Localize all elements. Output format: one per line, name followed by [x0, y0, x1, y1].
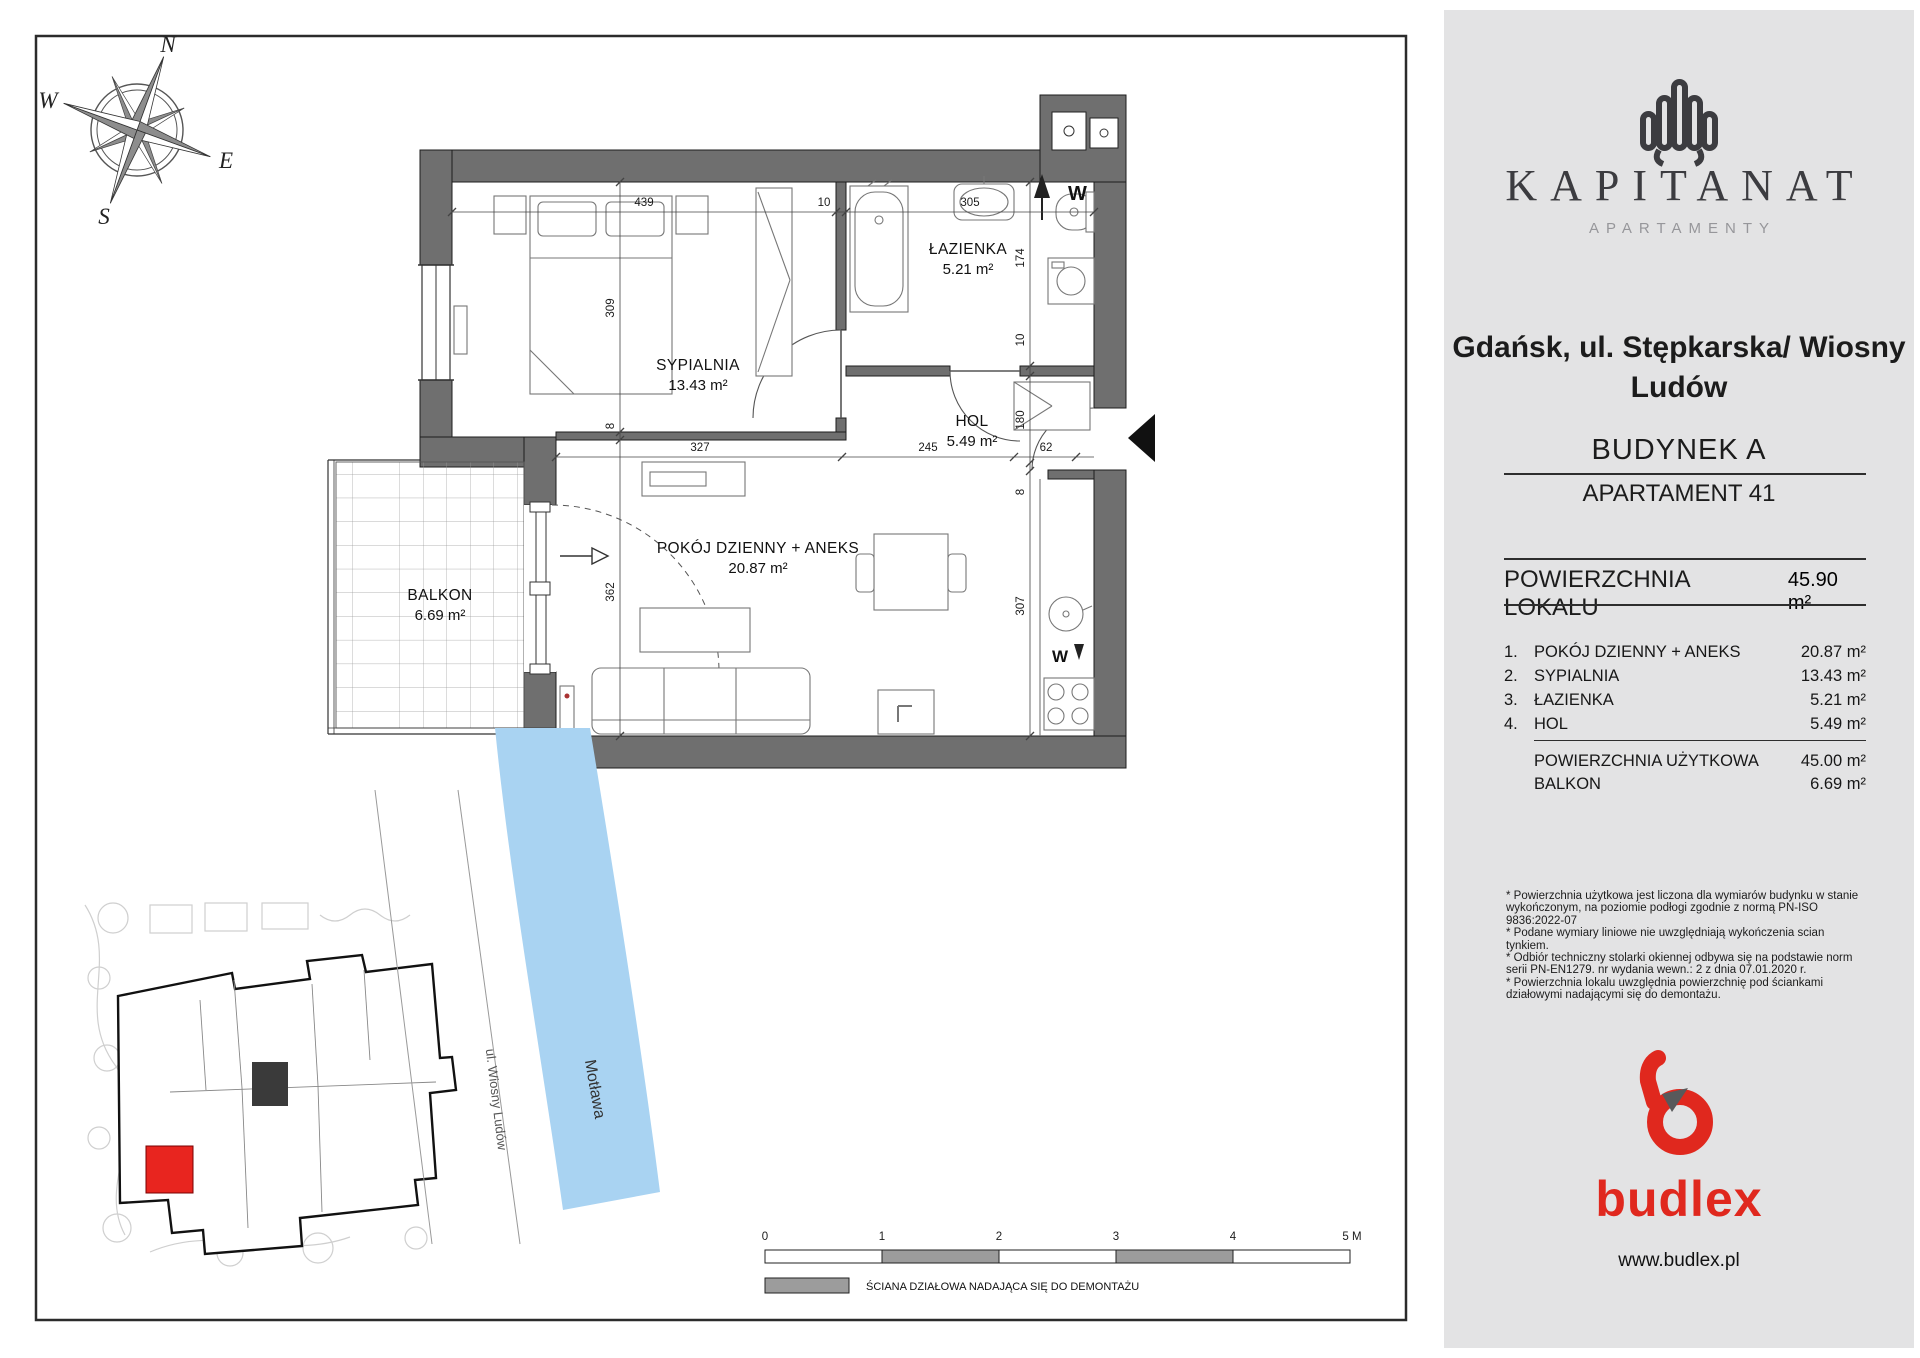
dim-door-width: 62 [1040, 442, 1053, 454]
row-room-area: 5.21 m² [1810, 688, 1866, 712]
info-sidebar: KAPITANAT APARTAMENTY Gdańsk, ul. Stępka… [1444, 10, 1914, 1348]
footnote: * Powierzchnia użytkowa jest liczona dla… [1506, 890, 1870, 927]
apartment-title: APARTAMENT 41 [1444, 480, 1914, 508]
legend-label: ŚCIANA DZIAŁOWA NADAJĄCA SIĘ DO DEMONTAŻ… [866, 1280, 1139, 1293]
compass-south-label: S [98, 204, 110, 229]
row-room-name: SYPIALNIA [1534, 664, 1801, 688]
sofa [592, 668, 810, 734]
room-label-lazienka: ŁAZIENKA [929, 241, 1007, 258]
row-room-area: 20.87 m² [1801, 640, 1866, 664]
dim-wall-8: 8 [1015, 489, 1027, 495]
balcony-area-row: BALKON 6.69 m² [1534, 773, 1866, 796]
dim-hol-width: 245 [918, 442, 937, 454]
washer-marker-label: W [1052, 647, 1069, 666]
compass-north-label: N [159, 32, 177, 57]
dim-living-depth2: 362 [605, 582, 617, 601]
scale-tick-3: 3 [1113, 1231, 1119, 1243]
room-area-sypialnia: 13.43 m² [668, 377, 727, 394]
website-url: www.budlex.pl [1444, 1250, 1914, 1272]
row-room-name: ŁAZIENKA [1534, 688, 1810, 712]
footnotes: * Powierzchnia użytkowa jest liczona dla… [1506, 890, 1870, 1002]
dim-wall-10: 10 [818, 197, 831, 209]
table-row: 1. POKÓJ DZIENNY + ANEKS 20.87 m² [1504, 640, 1866, 664]
brand-name: KAPITANAT [1444, 160, 1914, 211]
row-room-name: POKÓJ DZIENNY + ANEKS [1534, 640, 1801, 664]
total-area-value: 45.90 m² [1788, 566, 1866, 622]
balcony-area-label: BALKON [1534, 773, 1601, 796]
dim-bedroom-width: 439 [634, 197, 653, 209]
apartment-location-highlight [146, 1146, 193, 1193]
room-table: 1. POKÓJ DZIENNY + ANEKS 20.87 m² 2. SYP… [1504, 640, 1866, 736]
vent-marker-label: W [1068, 183, 1087, 205]
balcony-area-value: 6.69 m² [1810, 773, 1866, 796]
divider-rule-1 [1504, 473, 1866, 475]
bedroom-window [418, 265, 454, 380]
dim-wall-8b: 8 [605, 423, 617, 429]
scale-tick-2: 2 [996, 1231, 1002, 1243]
dim-bath-depth: 174 [1015, 248, 1027, 268]
kitchen-cabinet [878, 690, 934, 734]
legend: ŚCIANA DZIAŁOWA NADAJĄCA SIĘ DO DEMONTAŻ… [765, 1278, 1139, 1293]
room-label-balkon: BALKON [407, 587, 472, 604]
address-line-2: Ludów [1444, 368, 1914, 408]
room-area-lazienka: 5.21 m² [943, 261, 994, 278]
utility-shaft-meters [1052, 112, 1118, 150]
room-area-hol: 5.49 m² [947, 433, 998, 450]
dim-wall-10b: 10 [1015, 334, 1027, 347]
table-divider [1534, 740, 1866, 741]
compass-west-label: W [38, 88, 59, 113]
project-address: Gdańsk, ul. Stępkarska/ Wiosny Ludów [1444, 328, 1914, 408]
building-title: BUDYNEK A [1444, 434, 1914, 467]
room-label-hol: HOL [955, 413, 988, 430]
table-row: 3. ŁAZIENKA 5.21 m² [1504, 688, 1866, 712]
usable-area-label: POWIERZCHNIA UŻYTKOWA [1534, 750, 1759, 773]
dim-bath-width: 305 [960, 197, 979, 209]
scale-tick-1: 1 [879, 1231, 885, 1243]
tv-cabinet [642, 462, 745, 496]
row-number: 4. [1504, 712, 1534, 736]
total-area-label: POWIERZCHNIA LOKALU [1504, 566, 1788, 622]
floor-plan-canvas: N E S W [0, 0, 1440, 1358]
dim-living-width: 327 [690, 442, 709, 454]
room-area-pokoj: 20.87 m² [728, 560, 787, 577]
room-label-pokoj: POKÓJ DZIENNY + ANEKS [657, 540, 859, 557]
footnote: * Odbiór techniczny stolarki okiennej od… [1506, 952, 1870, 977]
bathtub [850, 186, 908, 312]
kapitanat-crown-icon [1637, 74, 1721, 170]
row-room-area: 13.43 m² [1801, 664, 1866, 688]
scale-tick-5: 5 M [1342, 1231, 1361, 1243]
footnote: * Podane wymiary liniowe nie uwzględniaj… [1506, 927, 1870, 952]
usable-area-row: POWIERZCHNIA UŻYTKOWA 45.00 m² [1534, 750, 1866, 773]
row-room-area: 5.49 m² [1810, 712, 1866, 736]
address-line-1: Gdańsk, ul. Stępkarska/ Wiosny [1444, 328, 1914, 368]
row-room-name: HOL [1534, 712, 1810, 736]
dim-living-depth: 307 [1015, 596, 1027, 615]
legend-swatch [765, 1278, 849, 1293]
footnote: * Powierzchnia lokalu uwzględnia powierz… [1506, 977, 1870, 1002]
row-number: 2. [1504, 664, 1534, 688]
budlex-wordmark: budlex [1444, 1170, 1914, 1228]
table-row: 4. HOL 5.49 m² [1504, 712, 1866, 736]
compass-east-label: E [218, 148, 233, 173]
scale-tick-0: 0 [762, 1231, 768, 1243]
stair-core [252, 1062, 288, 1106]
divider-rule-3 [1504, 604, 1866, 606]
scale-tick-4: 4 [1230, 1231, 1237, 1243]
row-number: 3. [1504, 688, 1534, 712]
totals-block: POWIERZCHNIA UŻYTKOWA 45.00 m² BALKON 6.… [1534, 750, 1866, 796]
usable-area-value: 45.00 m² [1801, 750, 1866, 773]
dim-hol-depth: 180 [1015, 410, 1027, 429]
dining-table [874, 534, 948, 610]
total-area-row: POWIERZCHNIA LOKALU 45.90 m² [1504, 566, 1866, 622]
room-label-sypialnia: SYPIALNIA [656, 357, 740, 374]
row-number: 1. [1504, 640, 1534, 664]
divider-rule-2 [1504, 558, 1866, 560]
coffee-table [640, 608, 750, 652]
table-row: 2. SYPIALNIA 13.43 m² [1504, 664, 1866, 688]
floorplan-card: N E S W [0, 0, 1920, 1358]
room-area-balkon: 6.69 m² [415, 607, 466, 624]
brand-subtitle: APARTAMENTY [1444, 220, 1914, 237]
budlex-logo-icon [1634, 1048, 1724, 1160]
dim-bedroom-depth: 309 [605, 298, 617, 317]
